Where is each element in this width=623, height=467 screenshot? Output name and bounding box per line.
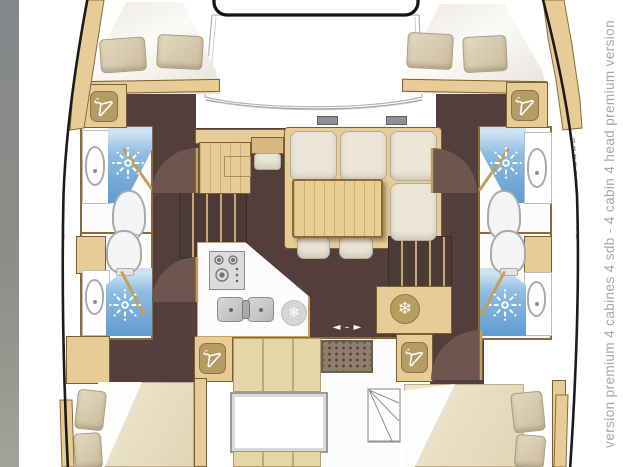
hanger-badge	[511, 90, 539, 121]
hanger-icon	[509, 90, 540, 121]
hanger-badge	[401, 342, 428, 373]
pillow	[462, 35, 508, 73]
sofa-cushion	[290, 131, 337, 181]
cabinet	[76, 236, 106, 274]
snowflake-icon: ❄	[288, 305, 300, 321]
cockpit-bench-cushion	[233, 451, 321, 467]
cabinet	[524, 236, 552, 274]
door-mat	[321, 340, 373, 373]
salon-table	[292, 179, 383, 238]
sofa-cushion	[390, 131, 437, 181]
caption-wrap: version premium 4 cabines 4 sdb - 4 cabi…	[595, 0, 623, 467]
galley-sink-right	[247, 297, 274, 322]
pillow	[156, 34, 204, 70]
toilet	[106, 230, 142, 274]
shower-spray-icon	[111, 146, 145, 180]
stove-burners	[209, 251, 243, 288]
pillow	[99, 36, 147, 73]
sofa-cushion	[340, 131, 387, 181]
pillow	[510, 390, 546, 433]
sofa-cushion	[390, 183, 437, 241]
pillow	[73, 432, 103, 467]
window-vent	[317, 116, 338, 125]
sink	[85, 279, 104, 315]
sink	[85, 146, 105, 186]
arrow-right-icon: ►	[354, 322, 362, 334]
hanger-icon	[88, 91, 119, 122]
arrow-left-icon: ◄	[333, 322, 341, 334]
pillow	[406, 32, 454, 70]
shower-spray-icon	[489, 146, 523, 180]
cabinet	[66, 336, 110, 384]
stool	[339, 236, 373, 259]
snowflake-icon: ❄	[398, 299, 412, 319]
faucet	[242, 300, 250, 319]
shower-spray-icon	[108, 288, 142, 322]
caption: version premium 4 cabines 4 sdb - 4 cabi…	[602, 20, 617, 448]
fridge-icon: ❄	[390, 294, 420, 324]
window-vent	[386, 116, 407, 125]
floorplan-catamaran: ❄ ❄ ◄ – ►	[0, 0, 623, 467]
pillow	[74, 389, 107, 432]
galley-sink-left	[217, 297, 244, 322]
bed-side-wall	[194, 378, 207, 467]
galley-fridge-icon: ❄	[281, 300, 307, 326]
nav-seat	[254, 153, 281, 170]
shower-spray-icon	[488, 288, 522, 322]
bow-cockpit	[205, 15, 422, 107]
hanger-badge	[90, 91, 118, 122]
stool	[297, 236, 330, 259]
toilet	[490, 230, 526, 274]
bow-hatch	[214, 0, 418, 15]
sliding-door-arrows: ◄ – ►	[321, 321, 373, 334]
hanger-icon	[198, 344, 228, 374]
cockpit-bench-cushion	[233, 338, 321, 392]
hanger-icon	[400, 343, 430, 373]
pillow	[514, 434, 547, 467]
arrow-dash: –	[345, 322, 350, 334]
cockpit-table	[230, 392, 328, 453]
starboard-aft-corridor-floor	[430, 336, 484, 386]
sink	[527, 281, 546, 317]
nav-desk-return	[251, 137, 284, 154]
companionway-stairs-starboard	[388, 236, 452, 292]
bed-side-wall	[552, 380, 566, 467]
sink	[527, 148, 547, 188]
nav-desk-hatch	[224, 156, 251, 177]
hanger-badge	[199, 343, 226, 374]
